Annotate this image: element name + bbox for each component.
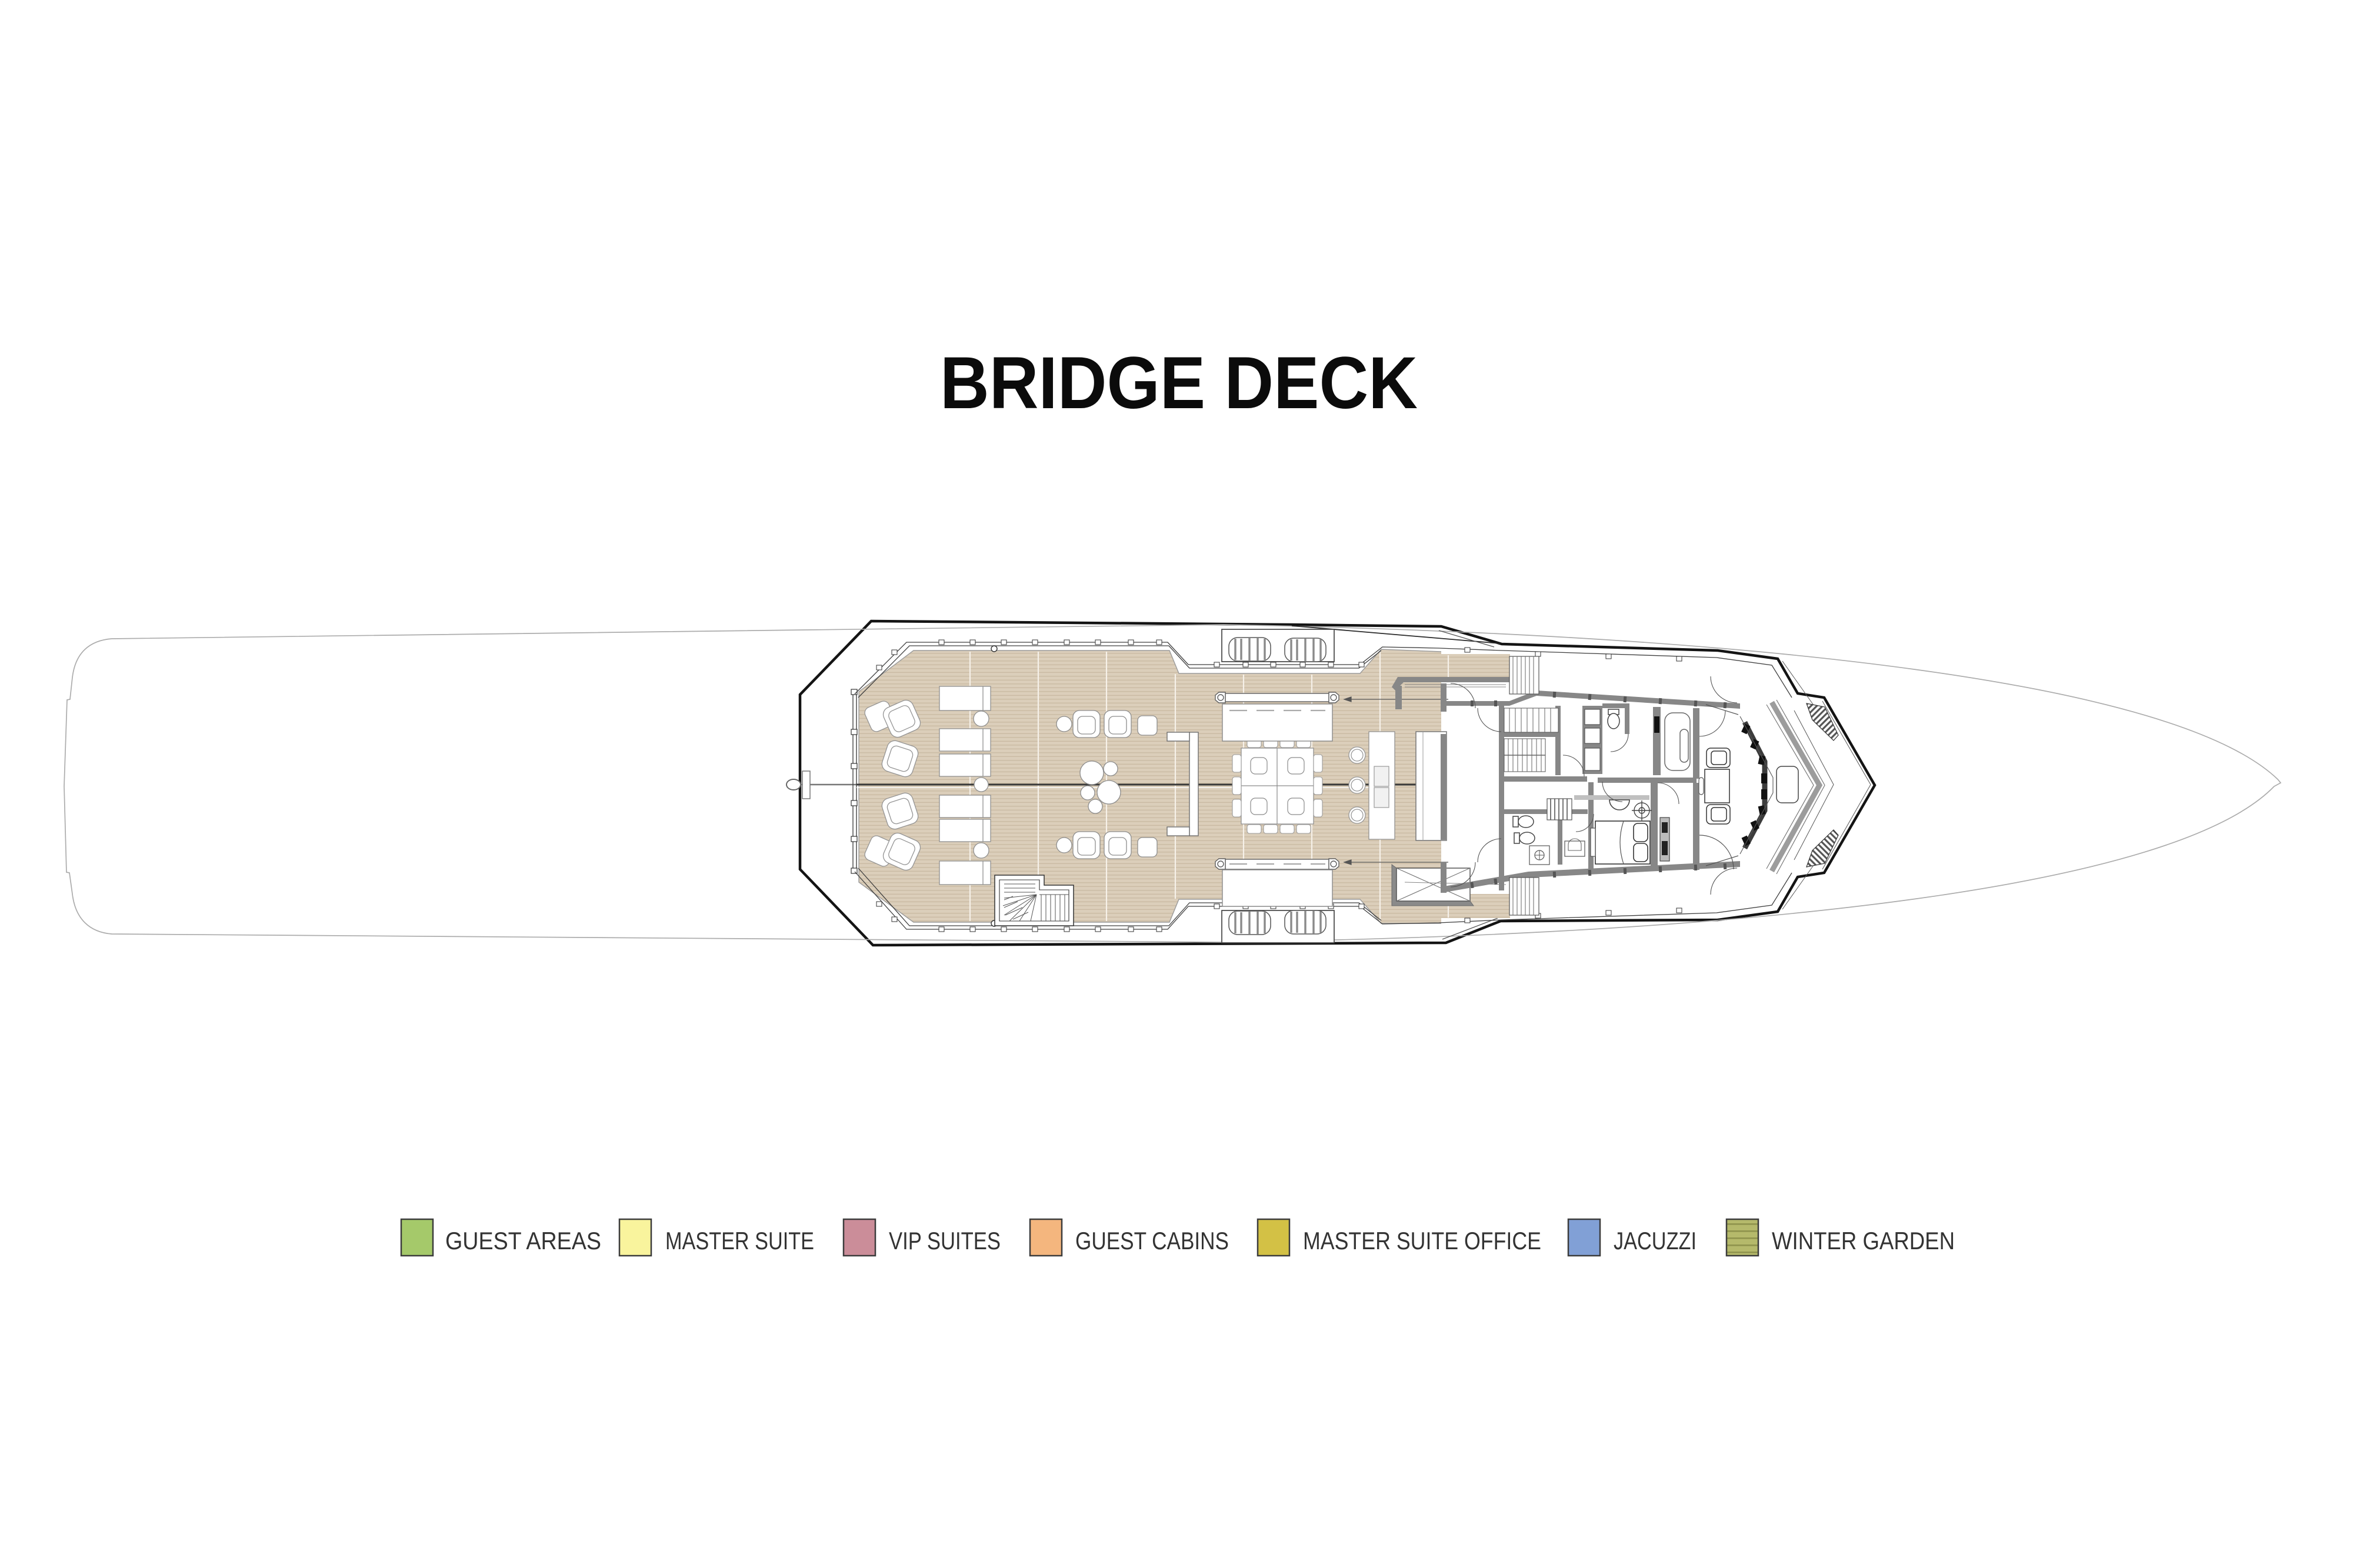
svg-text:WINTER GARDEN: WINTER GARDEN: [1772, 1227, 1955, 1255]
svg-text:JACUZZI: JACUZZI: [1614, 1227, 1697, 1255]
svg-text:GUEST AREAS: GUEST AREAS: [445, 1227, 601, 1255]
svg-text:BRIDGE DECK: BRIDGE DECK: [940, 342, 1418, 424]
svg-text:VIP SUITES: VIP SUITES: [889, 1227, 1001, 1255]
svg-text:MASTER SUITE OFFICE: MASTER SUITE OFFICE: [1303, 1227, 1541, 1255]
svg-text:GUEST CABINS: GUEST CABINS: [1075, 1227, 1229, 1255]
svg-text:MASTER SUITE: MASTER SUITE: [665, 1227, 814, 1255]
